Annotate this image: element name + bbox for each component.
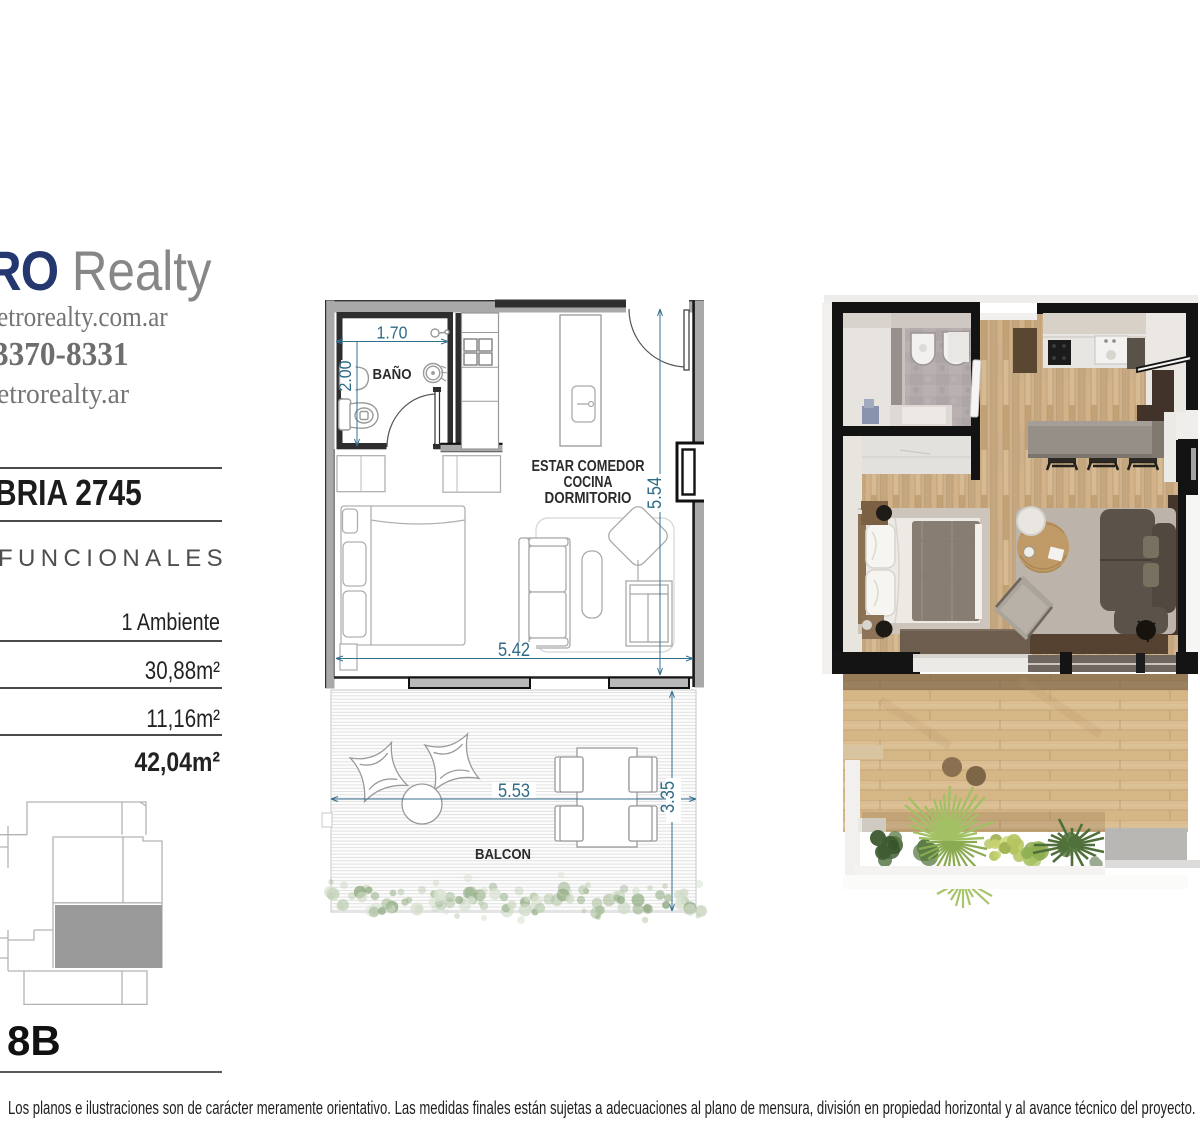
svg-text:COCINA: COCINA — [564, 474, 613, 491]
svg-text:3.35: 3.35 — [658, 781, 679, 813]
svg-text:5.53: 5.53 — [498, 781, 530, 802]
svg-text:DORMITORIO: DORMITORIO — [545, 490, 632, 507]
svg-text:5.54: 5.54 — [645, 477, 666, 509]
svg-text:5.42: 5.42 — [498, 640, 530, 661]
svg-text:ESTAR COMEDOR: ESTAR COMEDOR — [532, 458, 645, 475]
svg-text:BAÑO: BAÑO — [373, 365, 412, 383]
svg-text:1.70: 1.70 — [377, 323, 408, 343]
svg-text:2.00: 2.00 — [335, 360, 355, 391]
svg-text:BALCON: BALCON — [475, 847, 531, 863]
